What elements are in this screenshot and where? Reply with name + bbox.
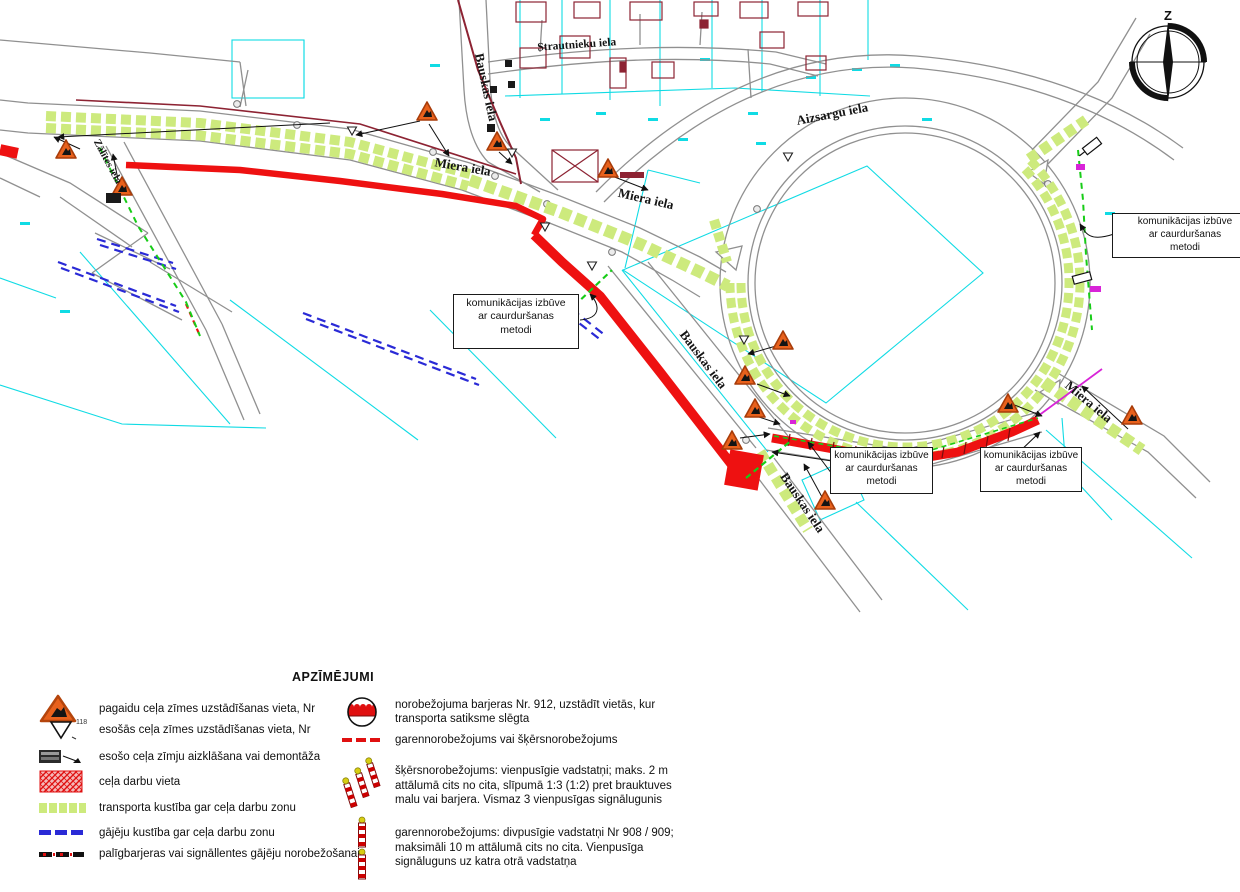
legend-item-pedestrian-route: gājēju kustība gar ceļa darbu zonu xyxy=(36,826,361,840)
legend-item-barrier-912: norobežojuma barjeras Nr. 912, uzstādīt … xyxy=(340,694,677,730)
annotation-box-communications-3: komunikācijas izbūve ar caurduršanas met… xyxy=(980,447,1082,492)
drill-rig-icon xyxy=(1077,137,1102,159)
traffic-scheme-page: Miera iela Miera iela Miera iela Bauskas… xyxy=(0,0,1240,892)
legend-item-label: gājēju kustība gar ceļa darbu zonu xyxy=(99,826,361,840)
legend-item-transport-route: transporta kustība gar ceļa darbu zonu xyxy=(36,800,361,816)
temporary-sign-icon xyxy=(1122,406,1142,424)
legend-item-longitudinal-delimiter: garennorobežojums: divpusīgie vadstatņi … xyxy=(340,815,677,881)
legend-item-label: pagaidu ceļa zīmes uzstādīšanas vieta, N… xyxy=(99,702,361,716)
work-area-hatch-icon xyxy=(36,769,88,795)
transport-route-dash-icon xyxy=(36,800,88,816)
compass-north-label: Z xyxy=(1164,8,1172,23)
annotation-box-communications-4: komunikācijas izbūve ar caurduršanas met… xyxy=(1112,213,1240,258)
legend-item-label: garennorobežojums vai šķērsnorobežojums xyxy=(395,733,677,747)
parcel-number-marks xyxy=(20,58,1115,313)
existing-sign-icon xyxy=(588,262,597,270)
delimiter-dash-icon xyxy=(340,735,384,745)
pedestrian-route-dash-icon xyxy=(36,827,88,839)
legend-item-label: norobežojuma barjeras Nr. 912, uzstādīt … xyxy=(395,698,677,727)
temporary-sign-icon xyxy=(745,399,765,417)
transport-route-layer xyxy=(46,116,1142,530)
legend-item-existing-sign: esošās ceļa zīmes uzstādīšanas vieta, Nr xyxy=(36,718,361,742)
temporary-sign-icon xyxy=(722,431,742,449)
street-label-bauskas-mid: Bauskas iela xyxy=(677,327,731,392)
temporary-sign-icon xyxy=(487,132,507,150)
legend-item-delimiter-dash: garennorobežojums vai šķērsnorobežojums xyxy=(340,733,677,747)
cross-delimiter-posts-icon xyxy=(340,757,384,815)
parcel-lines-layer xyxy=(0,0,1192,610)
temporary-sign-icon xyxy=(56,140,76,158)
annotation-box-communications-1: komunikācijas izbūve ar caurduršanas met… xyxy=(453,294,579,349)
legend-item-cross-delimiter: šķērsnorobežojums: vienpusīgie vadstatņi… xyxy=(340,757,677,815)
street-label-zalites: Zālītes iela xyxy=(91,138,124,187)
legend-item-label: garennorobežojums: divpusīgie vadstatņi … xyxy=(395,826,677,869)
map-drawing: Miera iela Miera iela Miera iela Bauskas… xyxy=(0,0,1240,660)
temporary-sign-icon xyxy=(773,331,793,349)
legend-item-label: palīgbarjeras vai signāllentes gājēju no… xyxy=(99,847,361,861)
legend-item-work-area: ceļa darbu vieta xyxy=(36,769,361,795)
legend-item-label: šķērsnorobežojums: vienpusīgie vadstatņi… xyxy=(395,764,677,807)
existing-sign-triangle-icon xyxy=(36,718,88,742)
legend-item-sign-cover: esošo ceļa zīmju aizklāšana vai demontāž… xyxy=(36,746,361,768)
aux-barrier-dash-icon xyxy=(36,848,88,860)
temporary-sign-icon xyxy=(598,159,618,177)
legend-item-aux-barrier: palīgbarjeras vai signāllentes gājēju no… xyxy=(36,847,361,861)
legend-item-label: esošās ceļa zīmes uzstādīšanas vieta, Nr xyxy=(99,723,361,737)
sign-cover-icon xyxy=(36,746,88,768)
legend-title: APZĪMĒJUMI xyxy=(292,670,374,684)
barrier-912-icon xyxy=(340,694,384,730)
compass-rose: Z xyxy=(1130,8,1206,102)
legend-item-label: esošo ceļa zīmju aizklāšana vai demontāž… xyxy=(99,750,361,764)
annotation-box-communications-2: komunikācijas izbūve ar caurduršanas met… xyxy=(830,447,933,494)
street-label-aizsargu: Aizsargu iela xyxy=(795,99,870,128)
legend-item-label: transporta kustība gar ceļa darbu zonu xyxy=(99,801,361,815)
existing-sign-icon xyxy=(784,153,793,161)
legend-item-label: ceļa darbu vieta xyxy=(99,775,361,789)
street-label-strautnieku: Strautnieku iela xyxy=(537,36,617,53)
manhole-icons xyxy=(234,101,1052,472)
compass-needle xyxy=(1163,22,1173,102)
temporary-sign-icon xyxy=(417,102,437,120)
longitudinal-delimiter-posts-icon xyxy=(340,815,384,881)
